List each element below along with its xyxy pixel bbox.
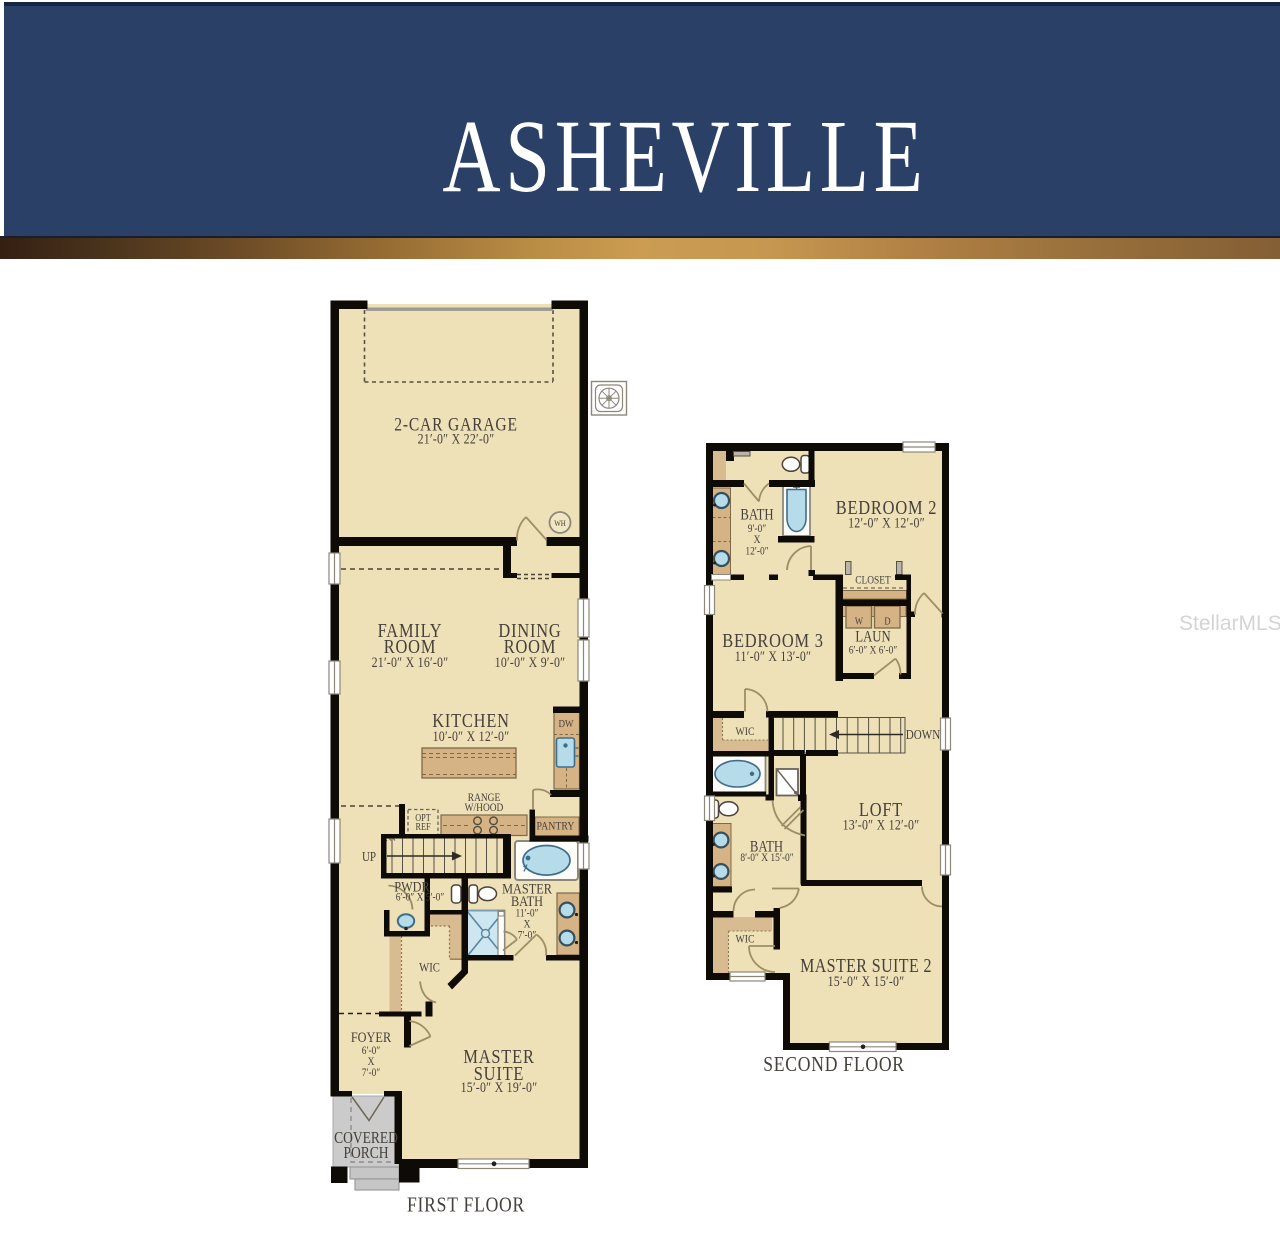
svg-text:10′-0″ X 9′-0″: 10′-0″ X 9′-0″	[495, 654, 566, 670]
svg-text:WIC: WIC	[419, 959, 440, 974]
svg-text:10′-0″ X 12′-0″: 10′-0″ X 12′-0″	[433, 728, 510, 744]
svg-text:6′-0″ X 6′-0″: 6′-0″ X 6′-0″	[849, 645, 898, 657]
svg-text:BATH: BATH	[740, 506, 773, 523]
svg-text:PORCH: PORCH	[343, 1145, 388, 1162]
svg-text:DW: DW	[558, 718, 573, 730]
svg-text:W: W	[855, 616, 864, 628]
svg-text:DOWN: DOWN	[906, 727, 940, 742]
svg-text:21′-0″ X 16′-0″: 21′-0″ X 16′-0″	[372, 654, 449, 670]
svg-text:7′-0″: 7′-0″	[518, 930, 537, 942]
svg-text:21′-0″ X 22′-0″: 21′-0″ X 22′-0″	[418, 430, 495, 446]
svg-text:FOYER: FOYER	[351, 1029, 392, 1045]
svg-text:X: X	[754, 534, 761, 546]
svg-text:13′-0″ X 12′-0″: 13′-0″ X 12′-0″	[843, 816, 920, 832]
svg-text:PANTRY: PANTRY	[537, 820, 575, 833]
svg-text:W/HOOD: W/HOOD	[465, 802, 504, 814]
svg-text:SECOND FLOOR: SECOND FLOOR	[763, 1052, 905, 1076]
svg-text:WIC: WIC	[735, 725, 754, 738]
svg-text:CLOSET: CLOSET	[855, 575, 891, 587]
svg-text:15′-0″ X 19′-0″: 15′-0″ X 19′-0″	[461, 1079, 538, 1095]
svg-text:UP: UP	[362, 849, 376, 864]
svg-text:12′-0″ X 12′-0″: 12′-0″ X 12′-0″	[848, 514, 925, 530]
svg-text:WH: WH	[554, 518, 566, 528]
svg-text:7′-0″: 7′-0″	[362, 1067, 381, 1079]
svg-text:11′-0″ X 13′-0″: 11′-0″ X 13′-0″	[735, 648, 811, 664]
svg-text:12′-0″: 12′-0″	[745, 546, 768, 558]
svg-text:8′-0″ X 15′-0″: 8′-0″ X 15′-0″	[740, 852, 793, 864]
svg-text:WIC: WIC	[735, 933, 754, 946]
svg-text:LAUN: LAUN	[855, 628, 890, 645]
svg-text:REF: REF	[415, 821, 430, 832]
svg-text:FIRST FLOOR: FIRST FLOOR	[407, 1193, 525, 1217]
svg-text:D: D	[884, 616, 890, 628]
svg-text:15′-0″ X 15′-0″: 15′-0″ X 15′-0″	[828, 973, 905, 989]
svg-text:6′-0″ X 5′-0″: 6′-0″ X 5′-0″	[396, 892, 445, 904]
